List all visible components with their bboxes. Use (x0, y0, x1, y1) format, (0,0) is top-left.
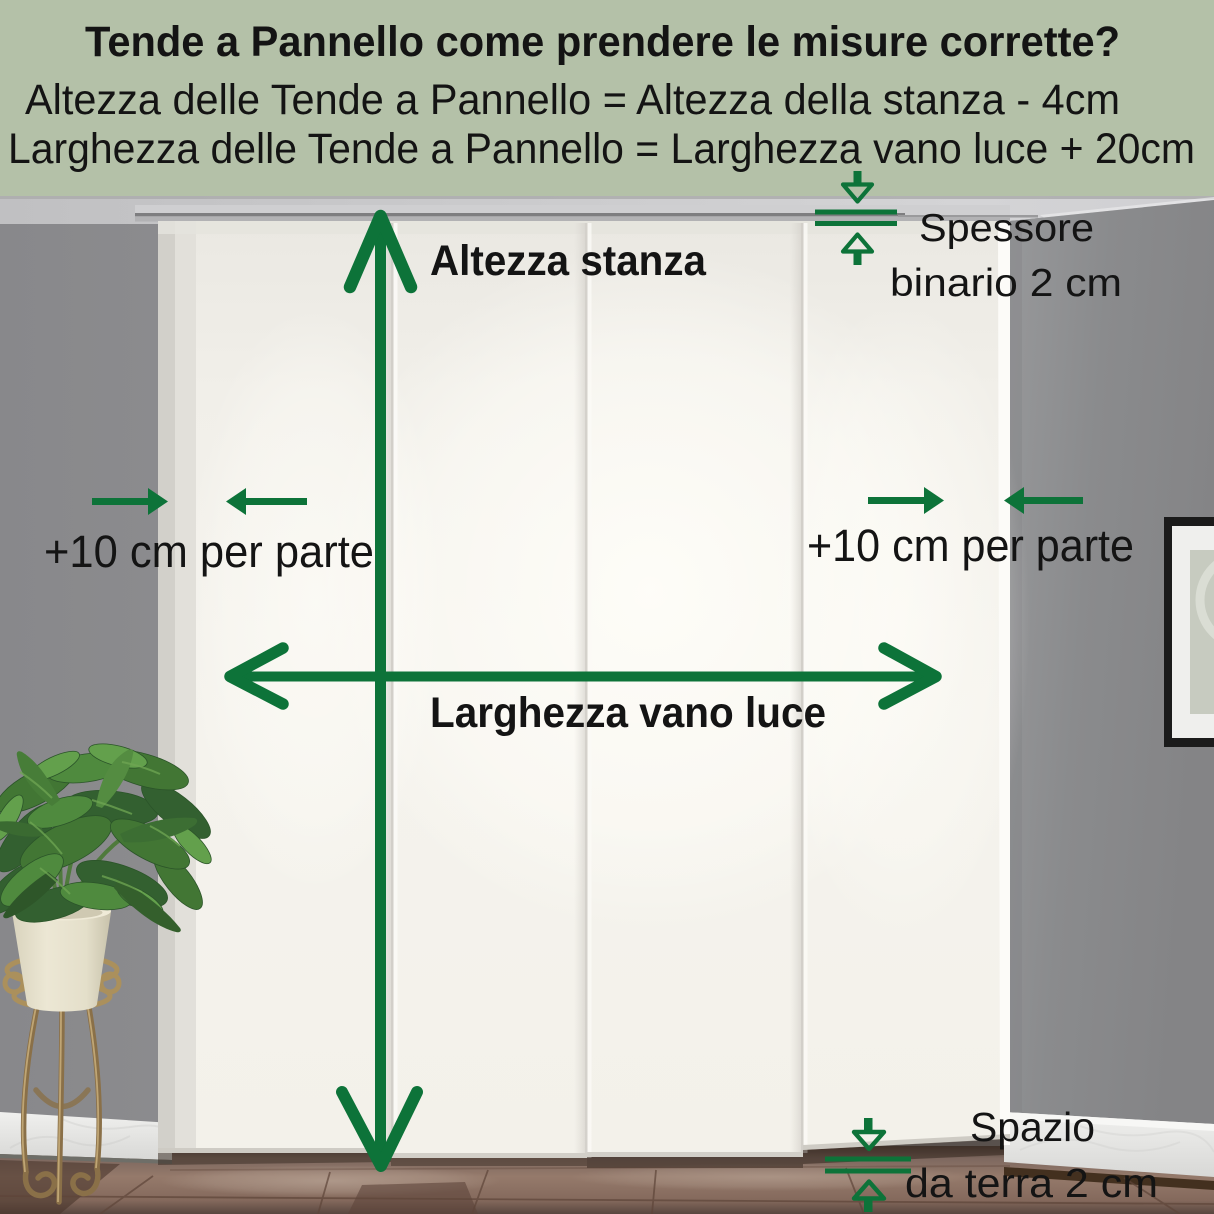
svg-text:Altezza stanza: Altezza stanza (430, 237, 707, 285)
svg-text:Altezza delle Tende a Pannello: Altezza delle Tende a Pannello = Altezza… (25, 76, 1120, 124)
svg-text:Spazio: Spazio (970, 1104, 1095, 1150)
svg-text:Spessore: Spessore (919, 207, 1094, 250)
svg-text:Larghezza delle Tende a Pannel: Larghezza delle Tende a Pannello = Largh… (8, 125, 1195, 173)
svg-text:Larghezza vano luce: Larghezza vano luce (430, 689, 826, 737)
svg-text:da terra 2 cm: da terra 2 cm (905, 1160, 1158, 1206)
svg-text:binario 2 cm: binario 2 cm (890, 262, 1122, 305)
svg-text:+10 cm per parte: +10 cm per parte (44, 526, 374, 577)
svg-text:+10 cm per parte: +10 cm per parte (807, 520, 1134, 571)
svg-text:Tende a Pannello come prendere: Tende a Pannello come prendere le misure… (85, 18, 1120, 66)
